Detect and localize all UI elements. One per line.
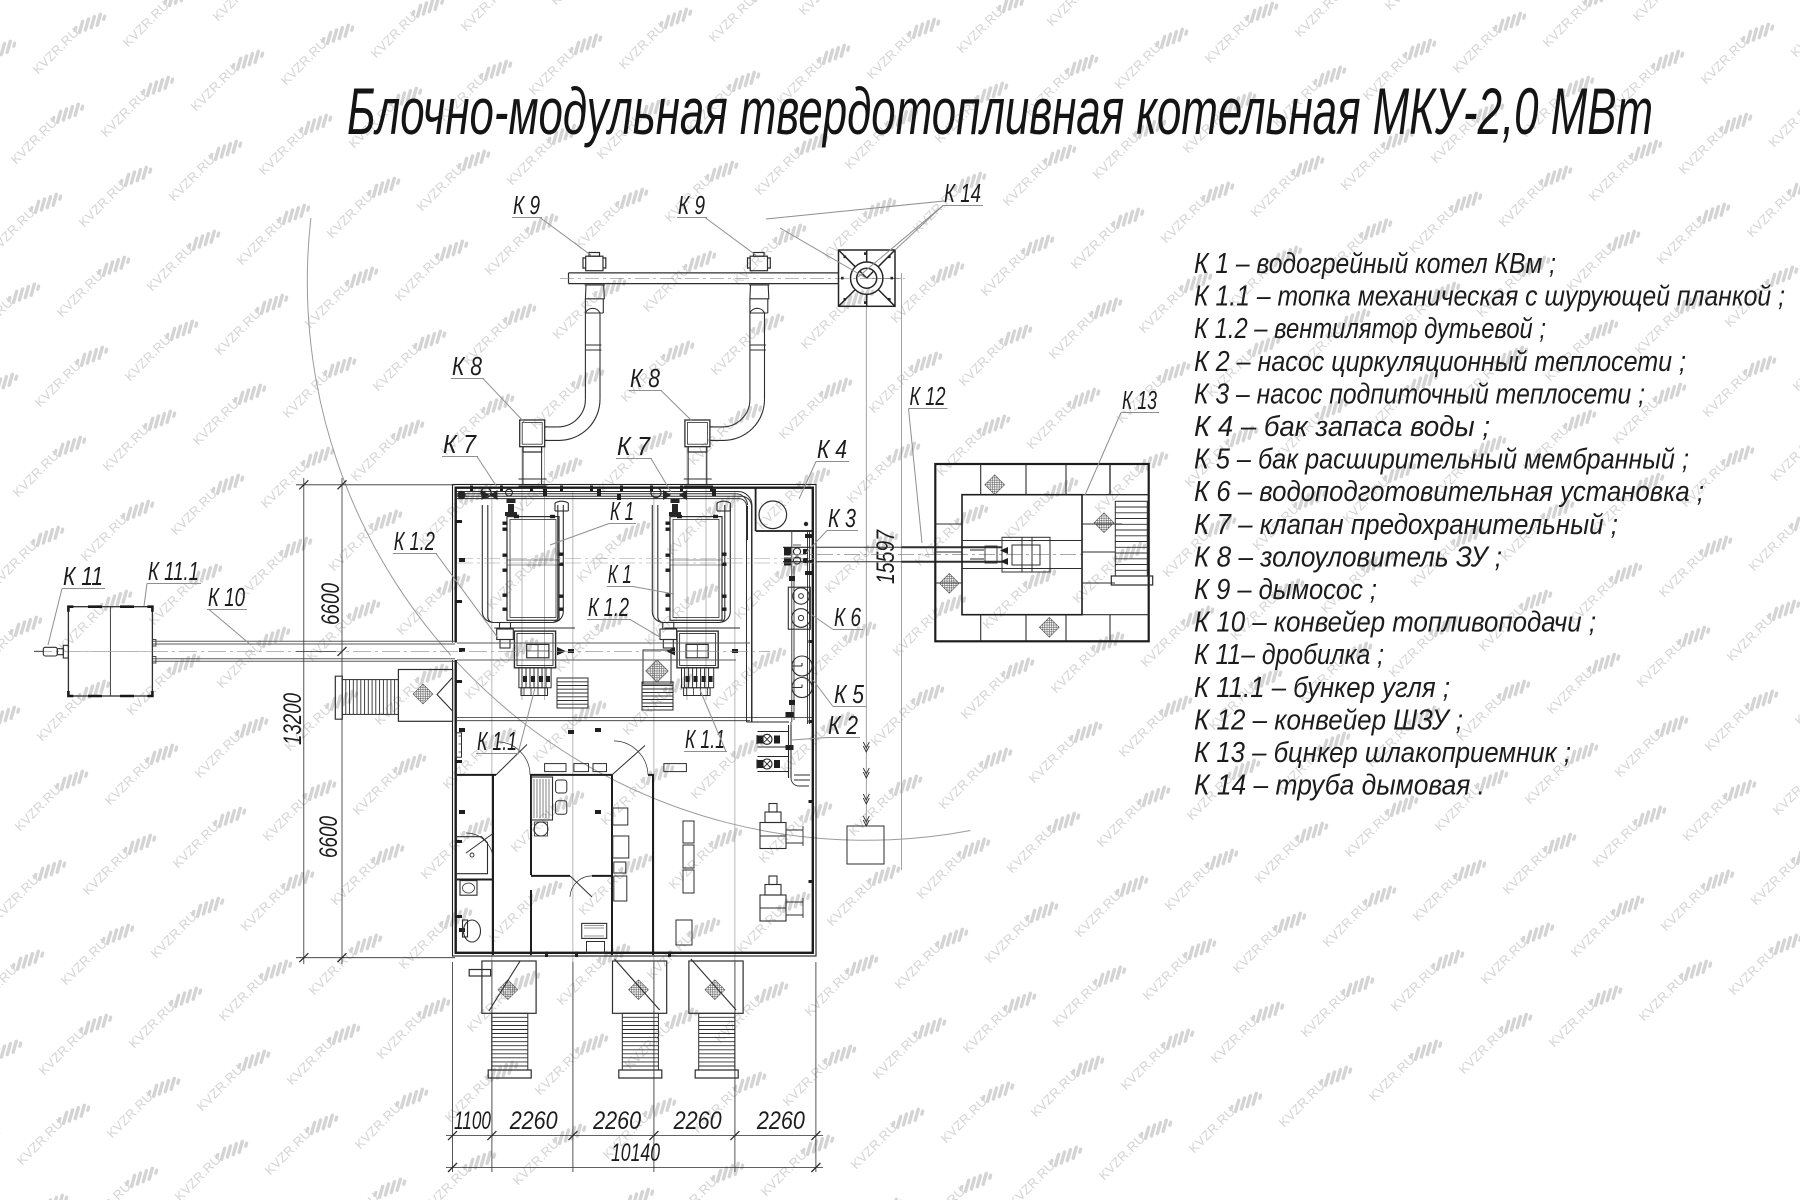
svg-text:К 14: К 14	[944, 178, 981, 208]
svg-text:К 14 – труба дымовая .: К 14 – труба дымовая .	[1194, 770, 1485, 802]
svg-text:К 7 – клапан предохранитель: К 7 – клапан предохранительный ;	[1194, 509, 1618, 541]
svg-text:Блочно-модульная твердотопливн: Блочно-модульная твердотопливная котельн…	[347, 74, 1653, 148]
svg-text:К 7: К 7	[617, 431, 651, 461]
svg-text:К 5 – бак расширительный ме: К 5 – бак расширительный мембранный ;	[1194, 444, 1689, 476]
svg-text:К 5: К 5	[834, 679, 864, 709]
svg-text:К 6 – водоподготовительная: К 6 – водоподготовительная установка ;	[1194, 476, 1704, 508]
svg-text:К 4 – бак запаса воды ;: К 4 – бак запаса воды ;	[1194, 411, 1490, 443]
svg-text:К 2: К 2	[828, 710, 858, 740]
svg-text:К 9: К 9	[513, 190, 540, 220]
svg-text:13200: 13200	[279, 693, 307, 745]
svg-text:К 8: К 8	[630, 363, 660, 393]
svg-text:К 7: К 7	[443, 429, 477, 459]
svg-text:К 8: К 8	[452, 351, 482, 381]
svg-text:10140: 10140	[611, 1139, 660, 1167]
svg-text:15597: 15597	[872, 529, 900, 584]
svg-text:К 8 – золоуловитель ЗУ ;: К 8 – золоуловитель ЗУ ;	[1194, 541, 1502, 573]
svg-text:К 3 – насос подпиточный теп: К 3 – насос подпиточный теплосети ;	[1194, 378, 1645, 410]
svg-text:К 6: К 6	[834, 602, 861, 632]
svg-text:К 4: К 4	[817, 434, 847, 464]
svg-text:К 1.2 – вентилятор дутьевой: К 1.2 – вентилятор дутьевой ;	[1194, 313, 1546, 345]
svg-text:2260: 2260	[673, 1107, 722, 1135]
svg-text:2260: 2260	[509, 1107, 558, 1135]
svg-text:К 12: К 12	[910, 381, 946, 411]
svg-text:К 1 – водогрейный котел КВм: К 1 – водогрейный котел КВм ;	[1194, 248, 1556, 280]
svg-text:К 1.1 – топка механическая: К 1.1 – топка механическая с шурующей пл…	[1194, 281, 1785, 313]
svg-text:К 11.1 – бункер угля ;: К 11.1 – бункер угля ;	[1194, 672, 1450, 704]
svg-text:К 9 – дымосос ;: К 9 – дымосос ;	[1194, 574, 1377, 606]
svg-text:К 13: К 13	[1122, 385, 1157, 415]
svg-text:6600: 6600	[317, 583, 345, 625]
svg-text:К 10 – конвейер топливопода: К 10 – конвейер топливоподачи ;	[1194, 607, 1596, 639]
svg-text:К 11: К 11	[63, 561, 103, 591]
svg-text:К 3: К 3	[828, 503, 856, 533]
svg-text:К 2 – насос циркуляционный: К 2 – насос циркуляционный теплосети ;	[1194, 346, 1686, 378]
svg-text:6600: 6600	[315, 816, 343, 858]
svg-text:К 11– дробилка ;: К 11– дробилка ;	[1194, 639, 1384, 671]
svg-text:К 12 – конвейер ШЗУ ;: К 12 – конвейер ШЗУ ;	[1194, 704, 1463, 736]
svg-text:К 13 – бцнкер шлакоприемник: К 13 – бцнкер шлакоприемник ;	[1194, 737, 1571, 769]
svg-text:К 1: К 1	[608, 559, 632, 589]
svg-text:К 1.1: К 1.1	[477, 726, 517, 756]
svg-text:К 9: К 9	[678, 190, 705, 220]
svg-text:2260: 2260	[756, 1107, 805, 1135]
svg-text:К 11.1: К 11.1	[148, 556, 199, 586]
svg-text:К 10: К 10	[208, 582, 245, 612]
svg-text:К 1.1: К 1.1	[685, 724, 725, 754]
svg-text:К 1.2: К 1.2	[588, 592, 629, 622]
svg-text:1100: 1100	[454, 1107, 491, 1135]
svg-text:2260: 2260	[592, 1107, 641, 1135]
svg-text:К 1.2: К 1.2	[394, 526, 435, 556]
svg-text:К 1: К 1	[610, 496, 634, 526]
